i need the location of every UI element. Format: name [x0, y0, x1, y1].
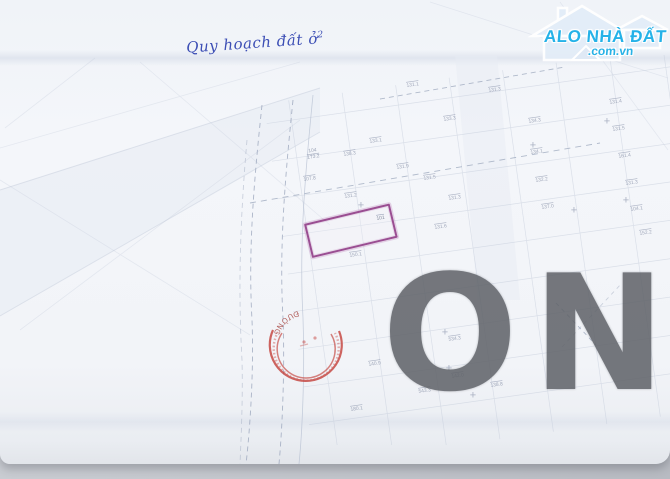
stamp-rim-text: ĐƯỜNG [272, 309, 301, 337]
photo-of-cadastral-map: 104 173.2 138.3 107.8 131.2 150.1 133.3 … [0, 0, 670, 479]
logo-domain: .com.vn [587, 44, 634, 58]
watermark-text: ON [382, 254, 670, 414]
note-superscript: 2 [317, 30, 324, 40]
site-logo: ALO NHÀ ĐẤT .com.vn [516, 0, 670, 66]
